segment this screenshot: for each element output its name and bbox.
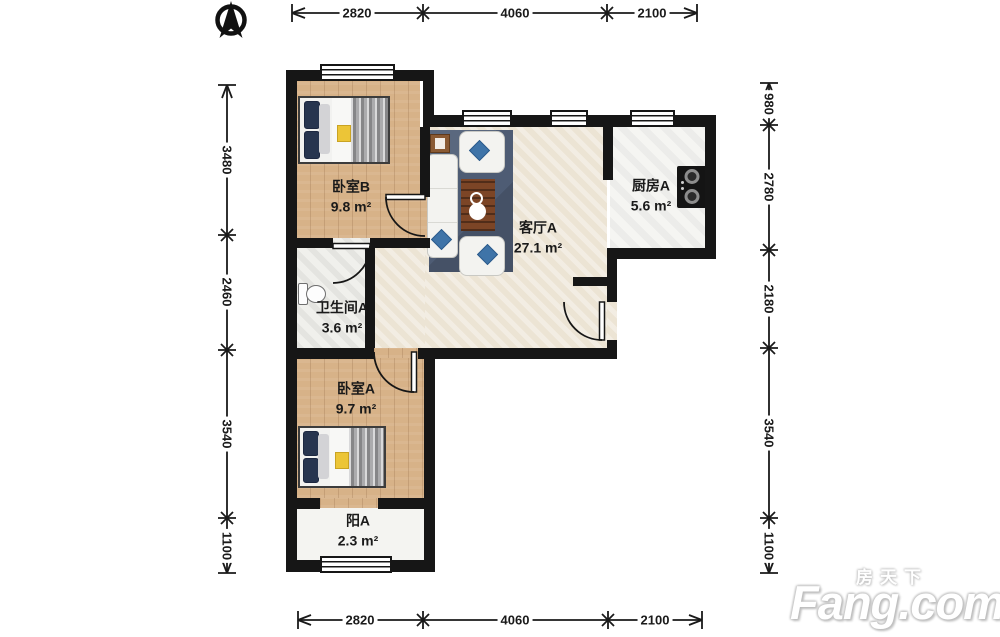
dimension-lines — [0, 0, 1000, 637]
north-arrow-icon — [210, 0, 252, 42]
dim-bottom-1: 2820 — [343, 613, 378, 628]
dim-top-2: 4060 — [498, 6, 533, 21]
dim-left-3: 3540 — [220, 417, 235, 452]
dim-bottom-2: 4060 — [498, 613, 533, 628]
fang-watermark-en: Fang.com — [790, 575, 1000, 630]
dim-top-1: 2820 — [340, 6, 375, 21]
dim-right-1: 980 — [762, 90, 777, 118]
floorplan-canvas: 卧室B 9.8 m² 客厅A 27.1 m² 厨房A 5.6 m² 卫生间A 3… — [0, 0, 1000, 637]
dim-left-2: 2460 — [220, 275, 235, 310]
dim-bottom-3: 2100 — [638, 613, 673, 628]
dim-right-5: 1100 — [762, 529, 777, 563]
dim-right-2: 2780 — [762, 170, 777, 205]
dim-right-3: 2180 — [762, 282, 777, 317]
fang-watermark: 房天下 Fang.com — [790, 563, 990, 637]
dim-top-3: 2100 — [635, 6, 670, 21]
dim-right-4: 3540 — [762, 416, 777, 451]
dim-left-4: 1100 — [220, 529, 235, 563]
dim-left-1: 3480 — [220, 143, 235, 178]
